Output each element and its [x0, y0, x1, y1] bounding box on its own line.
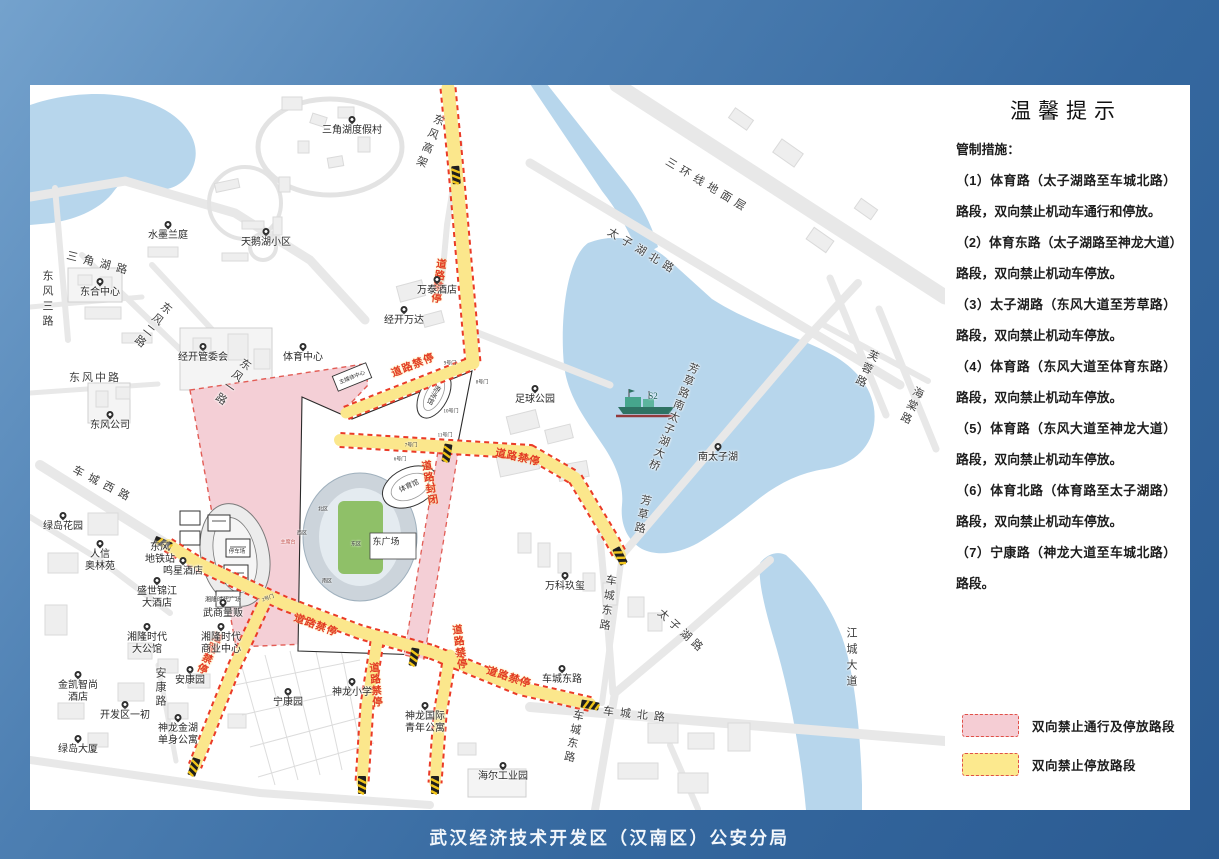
map-pin-icon	[420, 701, 430, 711]
poi-label: 东风地铁站	[145, 542, 175, 566]
map-pin-icon	[152, 576, 162, 586]
poi-label: 海尔工业园	[478, 771, 528, 783]
poi-label: 盛世锦江大酒店	[137, 586, 177, 610]
poi-label: 神龙小学	[332, 687, 372, 699]
notice-items: （1）体育路（太子湖路至车城北路）路段，双向禁止机动车通行和停放。（2）体育东路…	[956, 165, 1176, 599]
legend-label: 双向禁止停放路段	[1032, 755, 1136, 774]
map-small-label: 体育馆	[397, 477, 420, 495]
road-label: 车城北路	[602, 702, 671, 725]
notice-item: （2）体育东路（太子湖路至神龙大道）路段，双向禁止机动车停放。	[956, 227, 1176, 289]
road-label: 芳草路	[630, 493, 654, 537]
map-small-label: 西区	[297, 530, 307, 537]
poi-label: 天鹅湖小区	[241, 237, 291, 249]
map-small-label: 主媒体中心	[338, 368, 367, 386]
footer-title: 武汉经济技术开发区（汉南区）公安分局	[430, 825, 790, 850]
map-small-label: 游泳馆	[425, 383, 444, 406]
poi-label: 人信奥林苑	[85, 549, 115, 573]
poi-label: 万泰酒店	[417, 285, 457, 297]
map-pin-icon	[283, 687, 293, 697]
legend-row: 双向禁止通行及停放路段	[962, 714, 1176, 737]
road-label: 车城西路	[70, 461, 138, 506]
poi-label: 南太子湖	[698, 452, 738, 464]
map-small-label: 南区	[322, 578, 332, 585]
restriction-label: 道路禁停	[448, 623, 469, 671]
road-label: 芳草路南太子湖大桥	[644, 360, 703, 474]
legend-row: 双向禁止停放路段	[962, 753, 1176, 776]
map-pin-icon	[530, 384, 540, 394]
map-small-label: 2号门	[261, 593, 275, 604]
map-pin-icon	[198, 342, 208, 352]
notice-item: （3）太子湖路（东风大道至芳草路）路段，双向禁止机动车停放。	[956, 289, 1176, 351]
restriction-label: 道路禁停	[366, 661, 385, 708]
poi-label: 体育中心	[283, 352, 323, 364]
road-label: 东风三路	[39, 270, 55, 330]
legend-swatch-no-traffic-no-parking	[962, 714, 1019, 737]
restriction-label: 道路禁停	[494, 445, 542, 469]
map-pin-icon	[142, 622, 152, 632]
notice-item: （5）体育路（东风大道至神龙大道）路段，双向禁止机动车停放。	[956, 413, 1176, 475]
poi-label: 绿岛花园	[43, 521, 83, 533]
restriction-label: 道路禁停	[389, 349, 437, 380]
map-pin-icon	[298, 342, 308, 352]
map-pin-icon	[58, 511, 68, 521]
notice-item: （1）体育路（太子湖路至车城北路）路段，双向禁止机动车通行和停放。	[956, 165, 1176, 227]
map-pin-icon	[216, 622, 226, 632]
poi-label: 绿岛大厦	[58, 744, 98, 756]
map-small-label: 6号门	[394, 456, 407, 463]
map-pin-icon	[73, 670, 83, 680]
legend-label: 双向禁止通行及停放路段	[1032, 716, 1175, 735]
map-pin-icon	[163, 220, 173, 230]
map-small-label: 东广场	[372, 535, 399, 548]
footer-bar: 武汉经济技术开发区（汉南区）公安分局	[0, 815, 1219, 859]
poi-label: 安康园	[175, 675, 205, 687]
poi-label: 湘隆时代商业中心	[201, 632, 241, 656]
map-pin-icon	[173, 713, 183, 723]
map-pin-icon	[105, 410, 115, 420]
poi-label: 武商量贩	[203, 608, 243, 620]
notice-item: （4）体育路（东风大道至体育东路）路段，双向禁止机动车停放。	[956, 351, 1176, 413]
map-pin-icon	[95, 277, 105, 287]
content-panel: 三角湖路东风三路东风二路东风一路东风中路车城西路东风高架三环线地面层太子湖北路芙…	[30, 85, 1190, 810]
poi-label: 经开万达	[384, 315, 424, 327]
road-label: 江城大道	[843, 627, 859, 691]
map-small-label: 10号门	[443, 408, 458, 415]
poi-label: 神龙国际青年公寓	[405, 711, 445, 735]
map-small-label: 11号门	[438, 432, 453, 439]
map-labels-layer: 三角湖路东风三路东风二路东风一路东风中路车城西路东风高架三环线地面层太子湖北路芙…	[30, 85, 945, 810]
map-pin-icon	[713, 442, 723, 452]
map-small-label: S2	[648, 391, 658, 401]
traffic-control-map: 三角湖路东风三路东风二路东风一路东风中路车城西路东风高架三环线地面层太子湖北路芙…	[30, 85, 945, 810]
map-pin-icon	[557, 664, 567, 674]
poi-label: 开发区一初	[100, 710, 150, 722]
map-small-label: 停车场	[229, 547, 246, 555]
poi-label: 神龙金湖单身公寓	[158, 723, 198, 747]
road-label: 海棠路	[895, 384, 927, 429]
restriction-label: 道路封闭	[418, 459, 441, 507]
poi-label: 鸣星酒店	[163, 566, 203, 578]
poi-label: 经开管委会	[178, 352, 228, 364]
map-pin-icon	[347, 115, 357, 125]
poi-label: 足球公园	[515, 394, 555, 406]
map-pin-icon	[73, 734, 83, 744]
road-label: 安康路	[152, 667, 168, 709]
map-small-label: 9号门	[444, 360, 457, 367]
poi-label: 万科玖玺	[545, 581, 585, 593]
road-label: 太子湖路	[654, 605, 709, 657]
map-small-label: 主席台	[280, 539, 295, 546]
map-pin-icon	[347, 677, 357, 687]
map-pin-icon	[95, 539, 105, 549]
poi-label: 湘隆时代大公馆	[127, 632, 167, 656]
map-pin-icon	[261, 227, 271, 237]
road-label: 东风高架	[410, 111, 447, 173]
notice-item: （7）宁康路（神龙大道至车城北路）路段。	[956, 537, 1176, 599]
poster-canvas: 三角湖路东风三路东风二路东风一路东风中路车城西路东风高架三环线地面层太子湖北路芙…	[0, 0, 1219, 859]
road-label: 东风中路	[69, 369, 121, 385]
map-pin-icon	[120, 700, 130, 710]
notice-item: （6）体育北路（体育路至太子湖路）路段，双向禁止机动车停放。	[956, 475, 1176, 537]
road-label: 太子湖北路	[605, 224, 682, 279]
map-pin-icon	[498, 761, 508, 771]
poi-label: 金凯智尚酒店	[58, 680, 98, 704]
road-label: 芙蓉路	[850, 347, 882, 392]
restriction-label: 道路禁停	[292, 610, 340, 640]
legend: 双向禁止通行及停放路段 双向禁止停放路段	[956, 698, 1176, 776]
road-label: 东风二路	[128, 298, 175, 352]
poi-label: 东风公司	[90, 420, 130, 432]
notice-title: 温馨提示	[956, 95, 1176, 125]
road-label: 车城东路	[559, 708, 586, 766]
road-label: 三角湖路	[65, 247, 135, 279]
restriction-label: 道路禁停	[485, 663, 533, 691]
map-pin-icon	[560, 571, 570, 581]
notice-sidebar: 温馨提示 管制措施： （1）体育路（太子湖路至车城北路）路段，双向禁止机动车通行…	[945, 85, 1190, 810]
map-pin-icon	[399, 305, 409, 315]
notice-intro: 管制措施：	[956, 135, 1176, 165]
road-label: 三环线地面层	[663, 153, 754, 216]
poi-label: 三角湖度假村	[322, 125, 382, 137]
poi-label: 东合中心	[80, 287, 120, 299]
map-small-label: 东区	[351, 541, 361, 548]
poi-label: 车城东路	[542, 674, 582, 686]
poi-label: 宁康园	[273, 697, 303, 709]
map-small-label: 7号门	[405, 442, 418, 449]
map-small-label: 北区	[318, 506, 328, 513]
map-small-label: 8号门	[476, 379, 489, 386]
legend-swatch-no-parking	[962, 753, 1019, 776]
road-label: 车城东路	[595, 573, 619, 635]
poi-label: 水墨兰庭	[148, 230, 188, 242]
map-pin-icon	[178, 556, 188, 566]
